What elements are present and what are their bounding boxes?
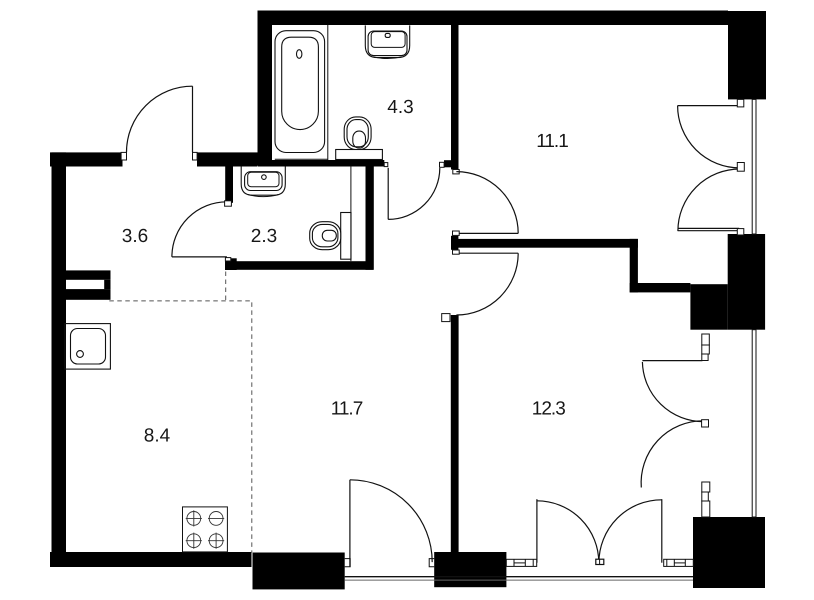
svg-text:12.3: 12.3 [532,398,565,419]
svg-text:4.3: 4.3 [387,97,413,118]
svg-text:11.7: 11.7 [331,398,363,419]
svg-text:3.6: 3.6 [122,226,148,247]
svg-text:11.1: 11.1 [536,131,568,152]
svg-text:8.4: 8.4 [144,425,171,446]
svg-text:2.3: 2.3 [251,226,277,247]
